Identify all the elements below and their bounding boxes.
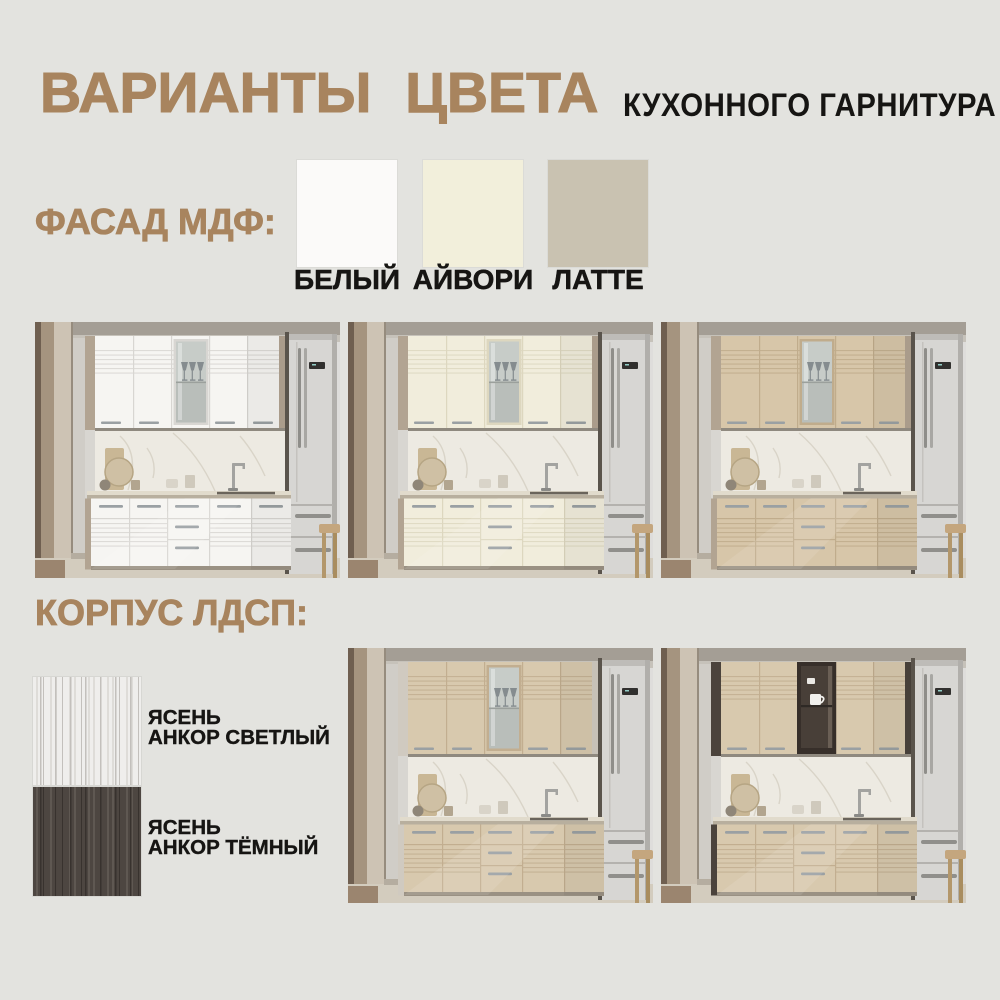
photo-kitchen-dark-carcass xyxy=(661,648,966,903)
facade-swatch-label-white: БЕЛЫЙ xyxy=(277,266,417,294)
carcass-light-line2: АНКОР СВЕТЛЫЙ xyxy=(148,728,330,748)
facade-swatch-white xyxy=(297,160,397,267)
kitchen-illustration xyxy=(661,648,966,903)
facade-swatch-label-latte: ЛАТТЕ xyxy=(528,266,668,294)
photo-kitchen-latte xyxy=(661,322,966,578)
kitchen-illustration xyxy=(35,322,340,578)
kitchen-illustration xyxy=(661,322,966,578)
kitchen-illustration xyxy=(348,322,653,578)
carcass-swatch-label-dark: ЯСЕНЬ АНКОР ТЁМНЫЙ xyxy=(148,818,318,857)
carcass-swatch-label-light: ЯСЕНЬ АНКОР СВЕТЛЫЙ xyxy=(148,708,330,747)
carcass-light-line1: ЯСЕНЬ xyxy=(148,708,330,728)
carcass-dark-line2: АНКОР ТЁМНЫЙ xyxy=(148,838,318,858)
photo-kitchen-white xyxy=(35,322,340,578)
facade-swatch-ivory xyxy=(423,160,523,267)
carcass-swatch-dark-ash xyxy=(33,787,141,896)
facade-section-label: ФАСАД МДФ: xyxy=(35,204,276,240)
carcass-swatch-light-ash xyxy=(33,677,141,785)
facade-swatch-label-ivory: АЙВОРИ xyxy=(403,266,543,294)
page: { "page": { "background": "#e3e3df" }, "… xyxy=(0,0,1000,1000)
carcass-dark-line1: ЯСЕНЬ xyxy=(148,818,318,838)
facade-swatch-latte xyxy=(548,160,648,267)
page-subtitle: КУХОННОГО ГАРНИТУРА xyxy=(623,89,996,121)
carcass-section-label: КОРПУС ЛДСП: xyxy=(35,595,308,631)
photo-kitchen-ivory xyxy=(348,322,653,578)
photo-kitchen-light-carcass xyxy=(348,648,653,903)
page-title: ВАРИАНТЫ ЦВЕТА xyxy=(40,65,598,122)
kitchen-illustration xyxy=(348,648,653,903)
